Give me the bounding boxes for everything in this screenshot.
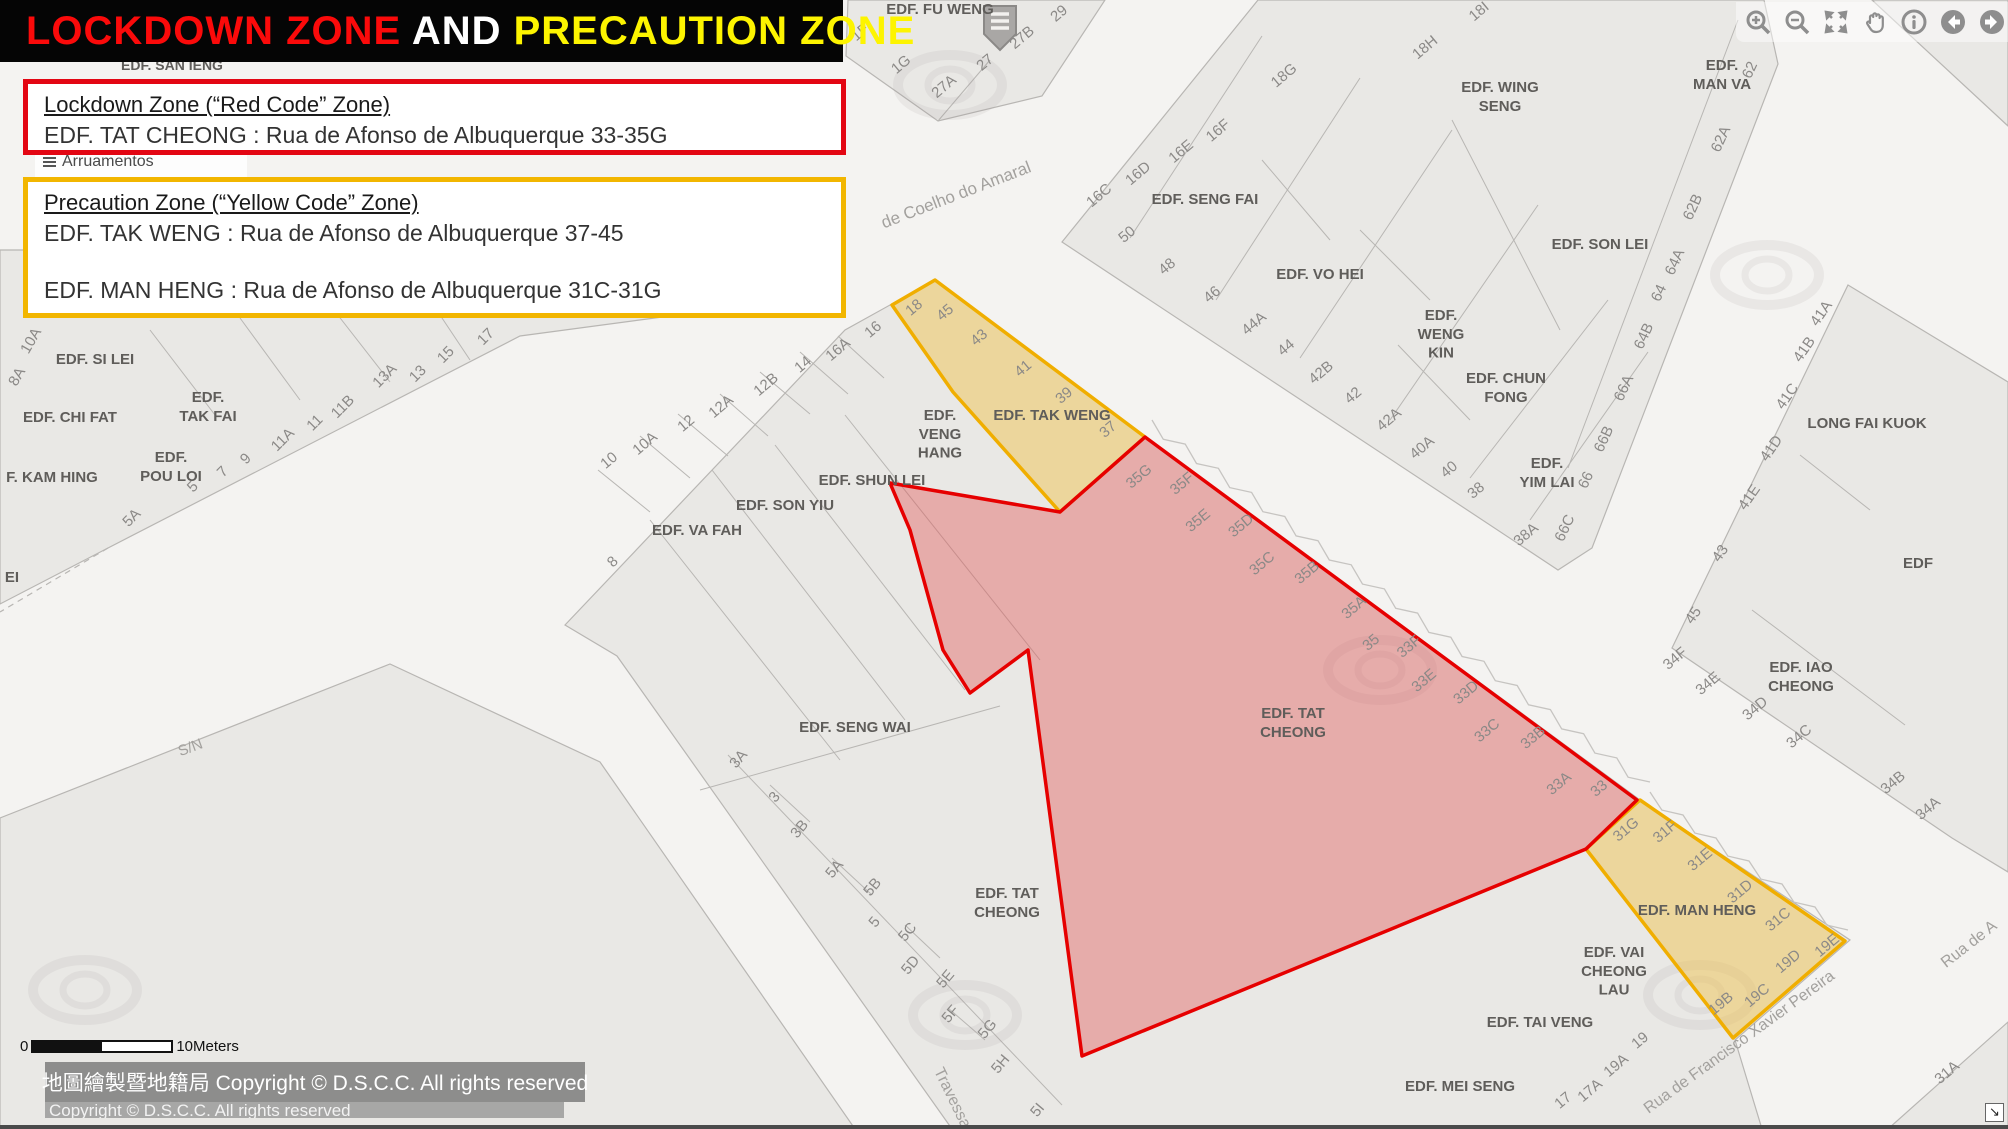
lockdown-heading: Lockdown Zone (“Red Code” Zone) [44,92,841,118]
precaution-heading: Precaution Zone (“Yellow Code” Zone) [44,190,841,216]
pan-hand-icon[interactable] [1861,8,1889,36]
title-banner: LOCKDOWN ZONE AND PRECAUTION ZONE [0,0,843,62]
building-name-label: EDF. SENG WAI [799,719,911,736]
building-name-label: LONG FAI KUOK [1807,415,1926,432]
full-extent-icon[interactable] [1822,8,1850,36]
scale-bar: 0 10Meters [20,1038,239,1055]
building-name-label: EDF.VENGHANG [918,407,962,462]
building-name-label: EDF. TATCHEONG [1260,705,1326,741]
building-name-label: EDF. VA FAH [652,522,742,539]
scale-bar-graphic [31,1040,173,1053]
precaution-legend-box: Precaution Zone (“Yellow Code” Zone) EDF… [23,177,846,318]
building-name-label: EDF. TAI VENG [1487,1014,1593,1031]
building-name-label: F. KAM HING [6,469,98,486]
building-name-label: EDF. SENG FAI [1152,191,1259,208]
building-name-label: EDF. TATCHEONG [974,885,1040,921]
map-canvas[interactable]: 18454341393735G35F35E35D35C35B35A3533F33… [0,0,2008,1129]
zoom-in-icon[interactable] [1744,8,1772,36]
map-toolbar [1736,2,2008,42]
layer-lines-icon [43,155,56,169]
copyright-notice-secondary: Copyright © D.S.C.C. All rights reserved [45,1102,564,1118]
banner-and-text: AND [401,9,513,54]
identify-info-icon[interactable] [1900,8,1928,36]
resize-handle-icon[interactable]: ↘ [1985,1103,2004,1122]
map-application: 18454341393735G35F35E35D35C35B35A3533F33… [0,0,2008,1129]
building-name-label: EDF. SON YIU [736,497,834,514]
building-name-label: EDF. SHUN LEI [819,472,926,489]
copyright-notice: 地圖繪製暨地籍局 Copyright © D.S.C.C. All rights… [45,1062,585,1102]
banner-lockdown-text: LOCKDOWN ZONE [26,9,401,54]
precaution-line-2: EDF. MAN HENG : Rua de Afonso de Albuque… [44,277,841,304]
building-name-label: EDF [1903,555,1933,572]
scale-label: 10Meters [176,1038,239,1055]
building-name-label: EDF. SI LEI [56,351,134,368]
building-name-label: EDF. SON LEI [1552,236,1649,253]
building-name-label: EDF. MEI SENG [1405,1078,1515,1095]
building-name-label: EDF. MAN HENG [1638,902,1756,919]
zoom-out-icon[interactable] [1783,8,1811,36]
forward-arrow-icon[interactable] [1978,8,2006,36]
banner-precaution-text: PRECAUTION ZONE [514,9,916,54]
lockdown-line: EDF. TAT CHEONG : Rua de Afonso de Albuq… [44,122,841,149]
back-arrow-icon[interactable] [1939,8,1967,36]
building-name-label: EDF. VO HEI [1276,266,1364,283]
precaution-line-1: EDF. TAK WENG : Rua de Afonso de Albuque… [44,220,841,247]
building-name-label: EI [5,569,19,586]
building-name-label: EDF. CHI FAT [23,409,117,426]
viewport-bottom-edge [0,1125,2008,1129]
layer-label: Arruamentos [62,153,154,171]
lockdown-legend-box: Lockdown Zone (“Red Code” Zone) EDF. TAT… [23,79,846,155]
building-name-label: EDF. TAK WENG [993,407,1110,424]
building-name-label: EDF. IAOCHEONG [1768,659,1834,695]
scale-zero: 0 [20,1038,28,1055]
